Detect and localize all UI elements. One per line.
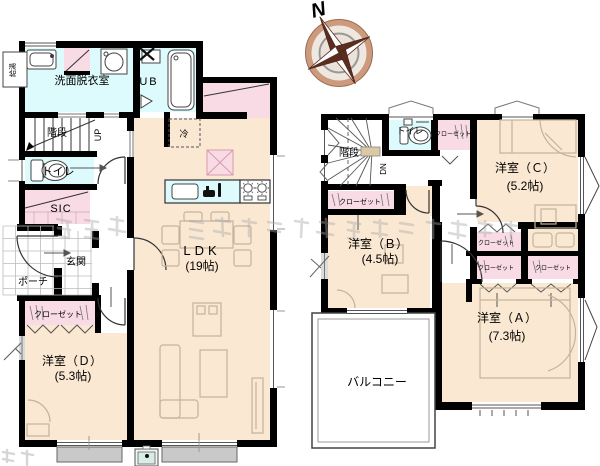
svg-text:給湯: 給湯 (8, 63, 17, 77)
svg-text:UP: UP (93, 129, 103, 142)
svg-text:トイレ: トイレ (42, 166, 75, 178)
svg-text:洋室（Ｃ）: 洋室（Ｃ） (495, 160, 555, 175)
svg-text:(5.3帖): (5.3帖) (55, 368, 92, 383)
svg-text:トイレ: トイレ (396, 126, 423, 136)
svg-text:SIC: SIC (50, 203, 71, 215)
svg-text:バルコニー: バルコニー (347, 375, 407, 389)
svg-text:洋室（Ｂ）: 洋室（Ｂ） (348, 236, 408, 251)
svg-text:(19帖): (19帖) (185, 258, 218, 273)
svg-text:(5.2帖): (5.2帖) (507, 178, 544, 193)
svg-text:LDK: LDK (183, 243, 220, 258)
svg-text:冷: 冷 (179, 128, 188, 139)
svg-text:クローゼット: クローゼット (478, 264, 514, 272)
svg-text:洋室（Ｄ）: 洋室（Ｄ） (42, 353, 102, 368)
svg-text:洗面脱衣室: 洗面脱衣室 (55, 73, 110, 87)
svg-text:玄関: 玄関 (66, 255, 86, 268)
svg-text:クローゼット: クローゼット (535, 264, 571, 272)
svg-text:クローゼット: クローゼット (478, 239, 514, 247)
svg-text:UB: UB (139, 76, 158, 88)
svg-text:(4.5帖): (4.5帖) (362, 251, 399, 266)
svg-text:ポーチ: ポーチ (18, 276, 48, 288)
svg-text:洋室（Ａ）: 洋室（Ａ） (477, 310, 537, 325)
svg-text:クローゼット: クローゼット (34, 309, 82, 319)
svg-text:(7.3帖): (7.3帖) (489, 328, 526, 343)
svg-text:クローゼット: クローゼット (435, 130, 471, 138)
svg-text:階段: 階段 (47, 126, 67, 139)
svg-text:階段: 階段 (339, 146, 359, 159)
svg-text:クローゼット: クローゼット (339, 197, 381, 206)
svg-text:DN: DN (379, 163, 388, 175)
